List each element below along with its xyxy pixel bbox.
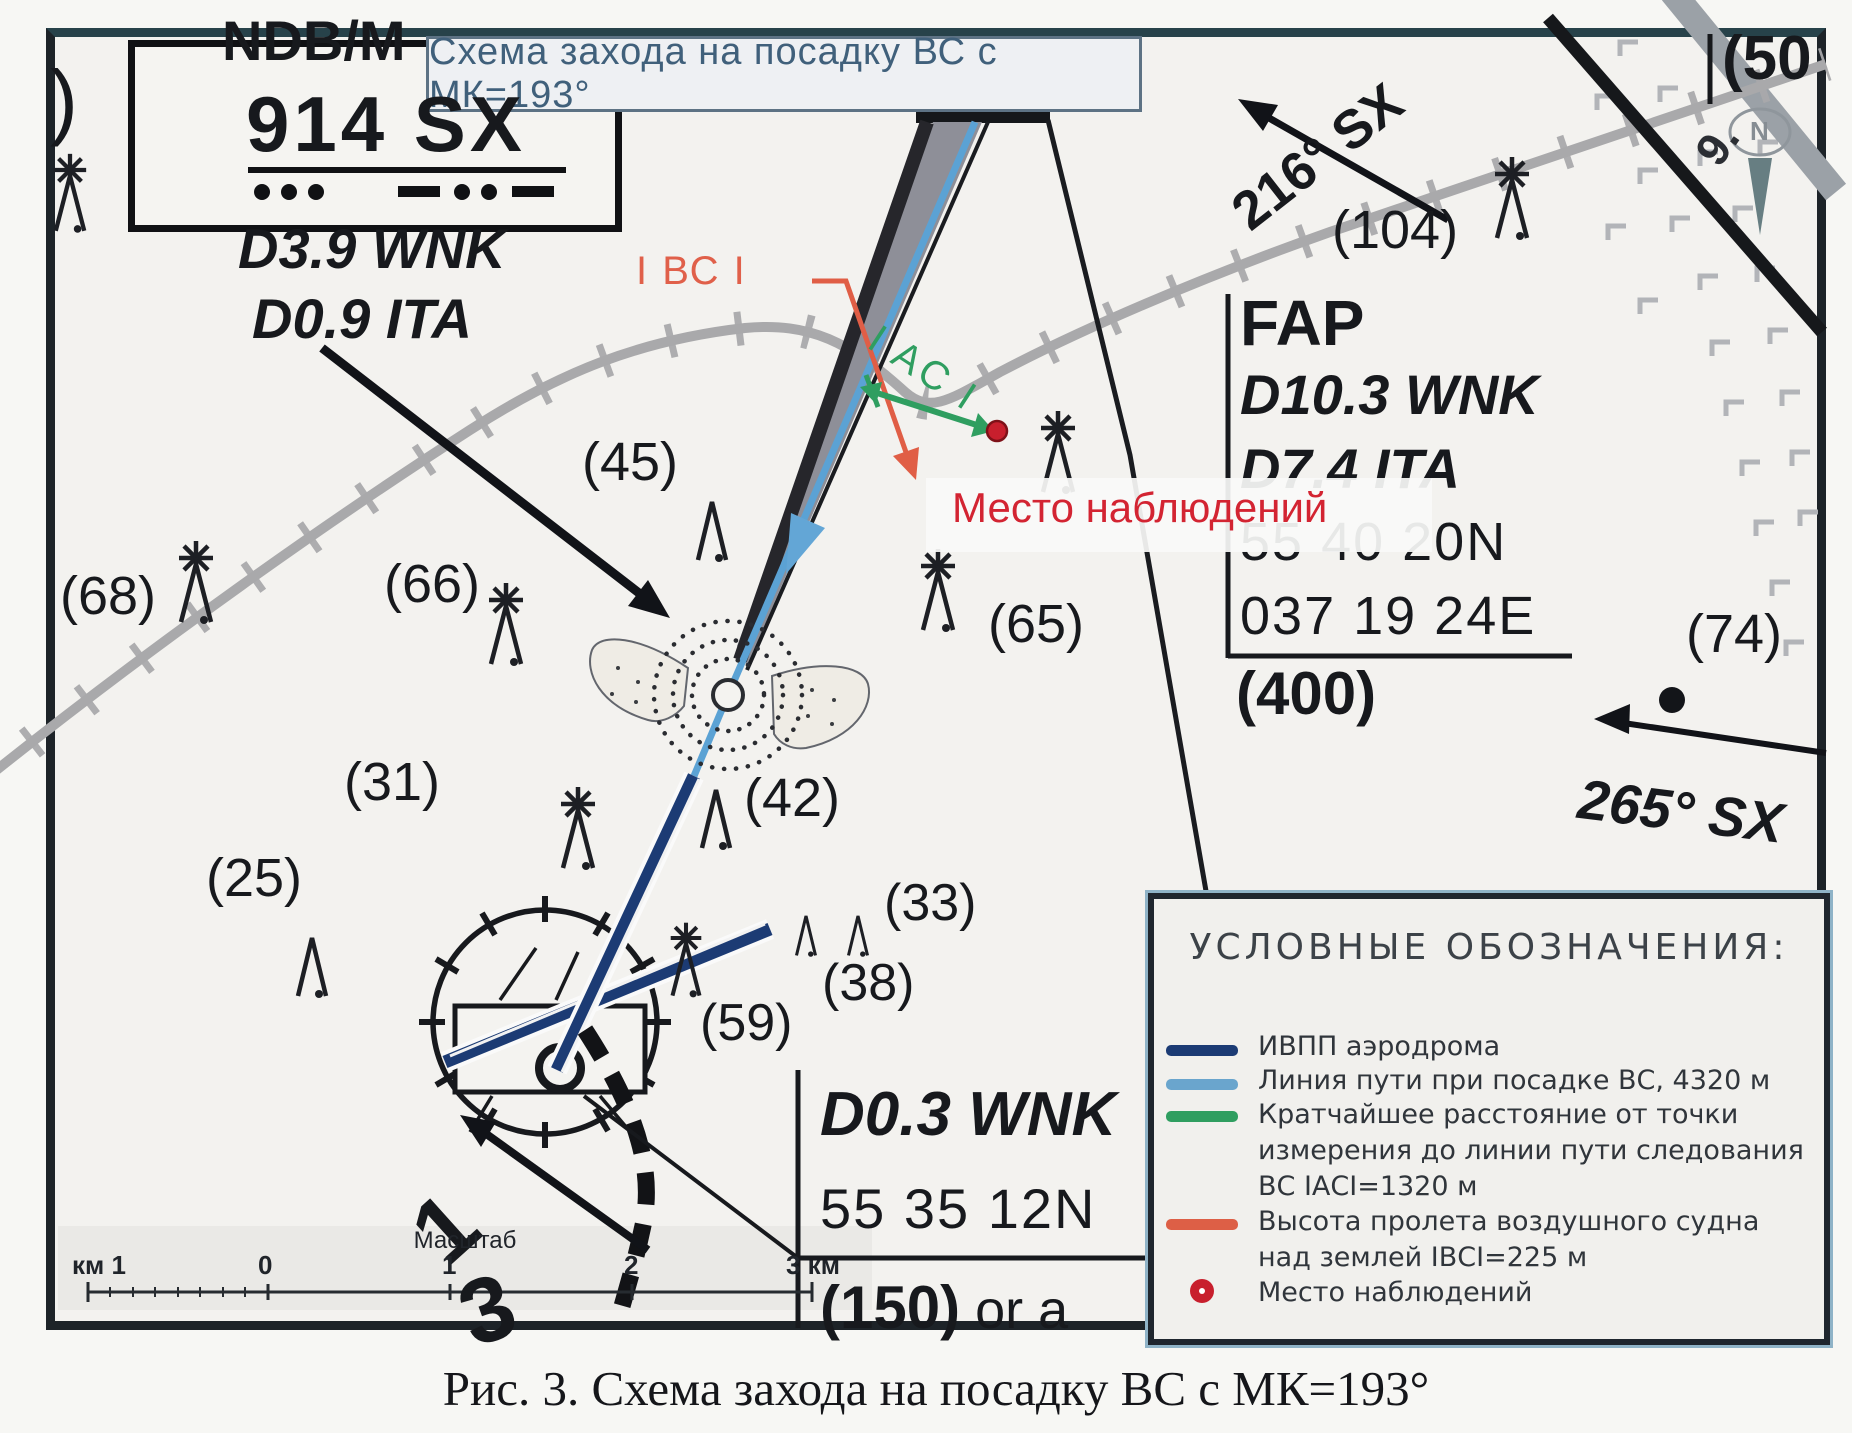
fap-dist-wnk: D10.3 WNK xyxy=(1240,366,1539,425)
legend-swatch-track xyxy=(1166,1079,1238,1090)
legend-swatch-height xyxy=(1166,1219,1238,1230)
d03-elevation: (150) xyxy=(820,1274,960,1341)
ndb-symbol xyxy=(590,621,869,769)
d03-elevation-rest: or a xyxy=(960,1280,1068,1340)
d03-elevation-line: (150) or a xyxy=(820,1276,1068,1339)
fap-elevation: (400) xyxy=(1236,662,1376,725)
elevation-59: (59) xyxy=(700,996,792,1051)
elevation-31: (31) xyxy=(344,754,440,811)
legend-label-shortest-distance: Кратчайшее расстояние от точки измерения… xyxy=(1258,1097,1810,1205)
clipped-paren-label: ) xyxy=(50,56,78,144)
d03-dist: D0.3 WNK xyxy=(820,1082,1116,1147)
legend-swatch-runway xyxy=(1166,1045,1238,1056)
legend-label-runway: ИВПП аэродрома xyxy=(1258,1029,1810,1065)
legend-swatch-shortest-distance xyxy=(1166,1111,1238,1122)
landing-track-arrowhead xyxy=(786,513,825,574)
scale-tick-0: 0 xyxy=(258,1252,272,1279)
approach-chart-figure: Схема захода на посадку ВС с МК=193° ) N… xyxy=(0,0,1852,1433)
scale-km-left: км 1 xyxy=(72,1252,126,1279)
ndb-ident: 914 SX xyxy=(246,84,526,166)
elevation-42: (42) xyxy=(744,770,840,827)
bc-height-label: I ВС I xyxy=(636,250,747,292)
legend-dot-observation xyxy=(1190,1279,1214,1303)
elevation-74: (74) xyxy=(1686,606,1782,663)
elevation-25: (25) xyxy=(206,850,302,907)
legend-label-height: Высота пролета воздушного судна над земл… xyxy=(1258,1204,1810,1276)
elevation-50-clipped: (50 xyxy=(1722,26,1812,91)
elevation-38: (38) xyxy=(822,956,914,1011)
observation-point-dot xyxy=(987,421,1007,441)
elevation-33: (33) xyxy=(884,876,976,931)
scale-bar xyxy=(88,1282,812,1302)
elevation-66: (66) xyxy=(384,556,480,613)
bearing-265-arrow xyxy=(1594,687,1826,753)
figure-caption: Рис. 3. Схема захода на посадку ВС с МК=… xyxy=(46,1360,1826,1417)
scale-km-right: 3 км xyxy=(786,1252,840,1279)
observation-point-label: Место наблюдений xyxy=(952,486,1327,530)
north-letter: N xyxy=(1750,118,1769,145)
scale-tick-2: 2 xyxy=(624,1252,638,1279)
scale-title: Масштаб xyxy=(58,1228,872,1253)
elevation-45: (45) xyxy=(582,434,678,491)
legend-label-track: Линия пути при посадке ВС, 4320 м xyxy=(1258,1063,1810,1099)
chart-title-box: Схема захода на посадку ВС с МК=193° xyxy=(426,36,1142,112)
elevation-104: (104) xyxy=(1332,202,1458,259)
fap-title: FAP xyxy=(1240,290,1364,357)
scale-tick-1: 1 xyxy=(442,1252,456,1279)
ndb-box-title: NDB/M xyxy=(222,12,406,71)
chart-title: Схема захода на посадку ВС с МК=193° xyxy=(429,31,1139,117)
legend-box: УСЛОВНЫЕ ОБОЗНАЧЕНИЯ: ИВПП аэродрома Лин… xyxy=(1148,893,1830,1345)
fix-d09-label: D0.9 ITA xyxy=(252,290,472,349)
fap-longitude: 037 19 24E xyxy=(1240,588,1536,645)
elevation-65: (65) xyxy=(988,596,1084,653)
morse-code xyxy=(248,170,566,200)
legend-label-observation: Место наблюдений xyxy=(1258,1275,1810,1311)
fix-d39-label: D3.9 WNK xyxy=(238,220,506,279)
legend-title: УСЛОВНЫЕ ОБОЗНАЧЕНИЯ: xyxy=(1154,927,1824,968)
elevation-68: (68) xyxy=(60,568,156,625)
